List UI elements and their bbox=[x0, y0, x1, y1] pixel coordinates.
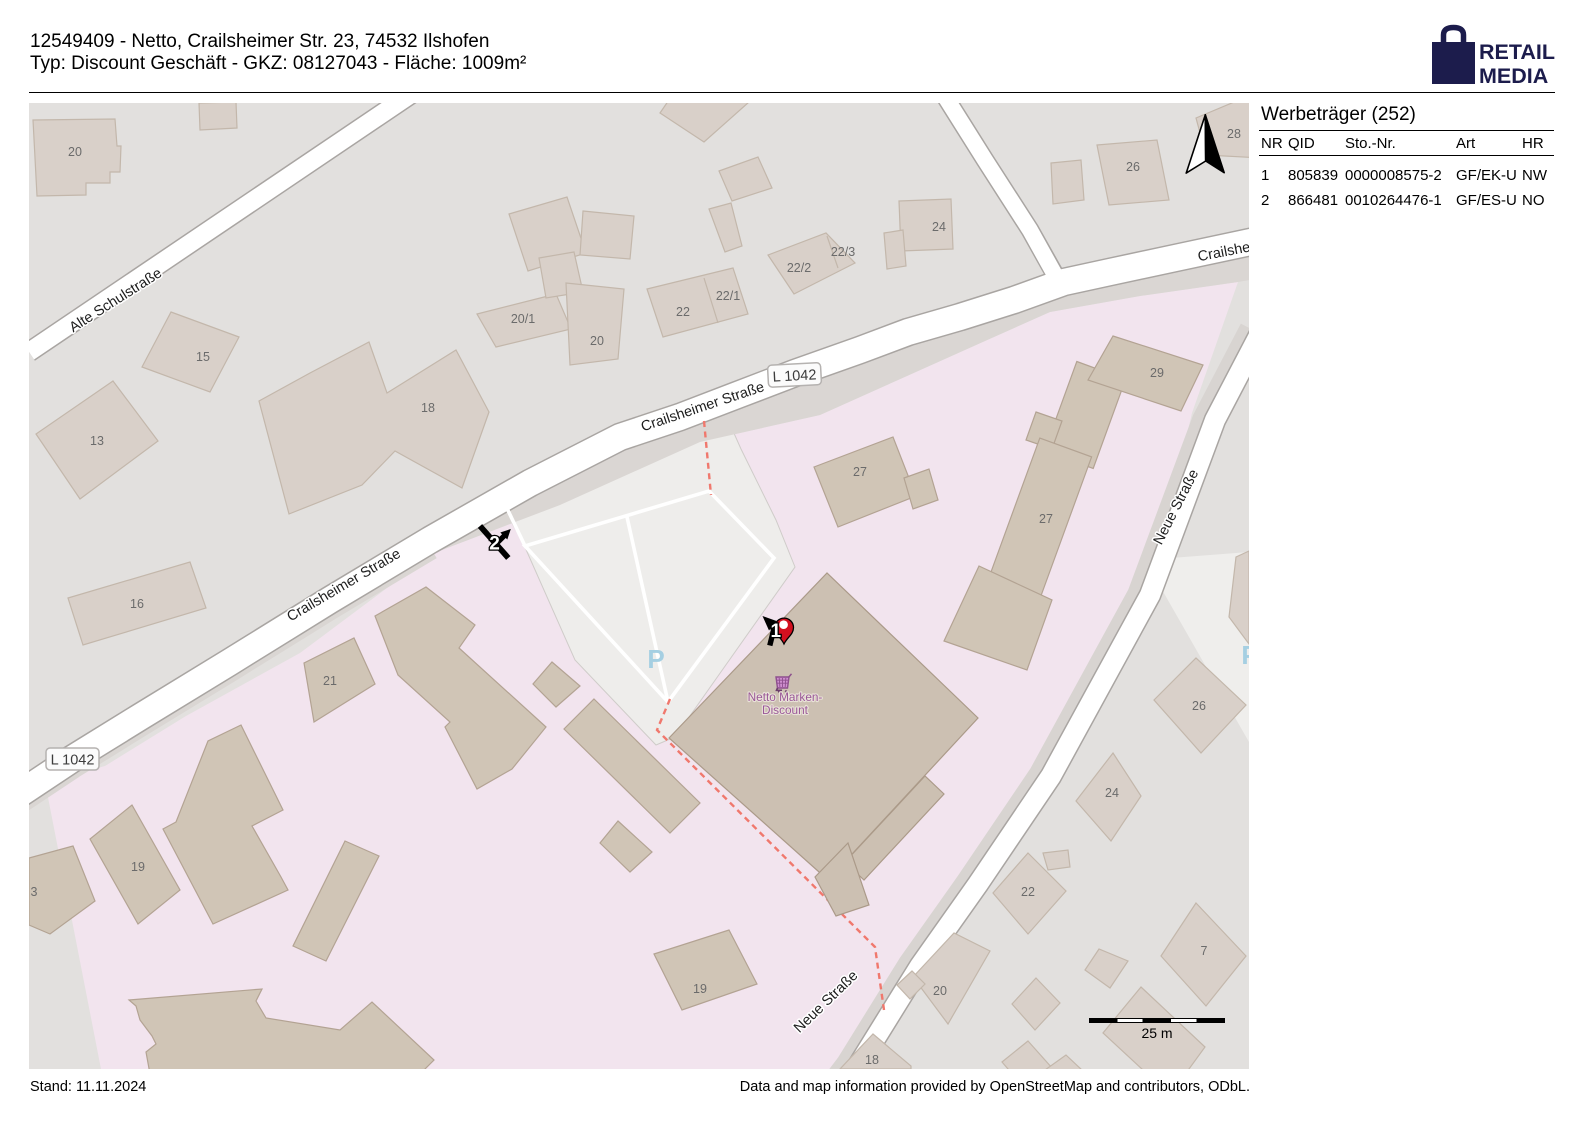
svg-text:Netto Marken-: Netto Marken- bbox=[748, 690, 823, 704]
svg-text:22/1: 22/1 bbox=[716, 289, 740, 303]
svg-text:2: 2 bbox=[489, 534, 500, 555]
svg-text:Discount: Discount bbox=[762, 703, 809, 717]
svg-text:27: 27 bbox=[853, 465, 867, 479]
svg-text:20: 20 bbox=[590, 334, 604, 348]
svg-text:24: 24 bbox=[932, 220, 946, 234]
svg-text:22: 22 bbox=[676, 305, 690, 319]
svg-text:29: 29 bbox=[1150, 366, 1164, 380]
svg-text:18: 18 bbox=[865, 1053, 879, 1067]
svg-text:19: 19 bbox=[693, 982, 707, 996]
svg-text:16: 16 bbox=[130, 597, 144, 611]
svg-text:18: 18 bbox=[421, 401, 435, 415]
svg-text:3: 3 bbox=[31, 885, 38, 899]
svg-text:15: 15 bbox=[196, 350, 210, 364]
svg-text:25 m: 25 m bbox=[1141, 1025, 1172, 1041]
svg-text:L 1042: L 1042 bbox=[51, 753, 95, 769]
svg-text:20/1: 20/1 bbox=[511, 312, 535, 326]
svg-text:22/2: 22/2 bbox=[787, 261, 811, 275]
svg-text:20: 20 bbox=[68, 145, 82, 159]
svg-text:13: 13 bbox=[90, 434, 104, 448]
svg-text:19: 19 bbox=[131, 860, 145, 874]
svg-text:24: 24 bbox=[1105, 786, 1119, 800]
svg-text:26: 26 bbox=[1192, 699, 1206, 713]
svg-text:L 1042: L 1042 bbox=[772, 367, 817, 385]
svg-text:P: P bbox=[1241, 640, 1249, 670]
svg-text:MEDIA: MEDIA bbox=[1479, 64, 1548, 86]
svg-text:22: 22 bbox=[1021, 885, 1035, 899]
svg-text:P: P bbox=[647, 644, 664, 674]
svg-text:21: 21 bbox=[323, 674, 337, 688]
svg-text:27: 27 bbox=[1039, 512, 1053, 526]
svg-text:26: 26 bbox=[1126, 160, 1140, 174]
svg-text:28: 28 bbox=[1227, 127, 1241, 141]
svg-text:RETAIL: RETAIL bbox=[1479, 40, 1555, 64]
svg-text:1: 1 bbox=[771, 621, 782, 642]
svg-text:7: 7 bbox=[1201, 944, 1208, 958]
svg-text:20: 20 bbox=[933, 984, 947, 998]
svg-text:22/3: 22/3 bbox=[831, 245, 855, 259]
